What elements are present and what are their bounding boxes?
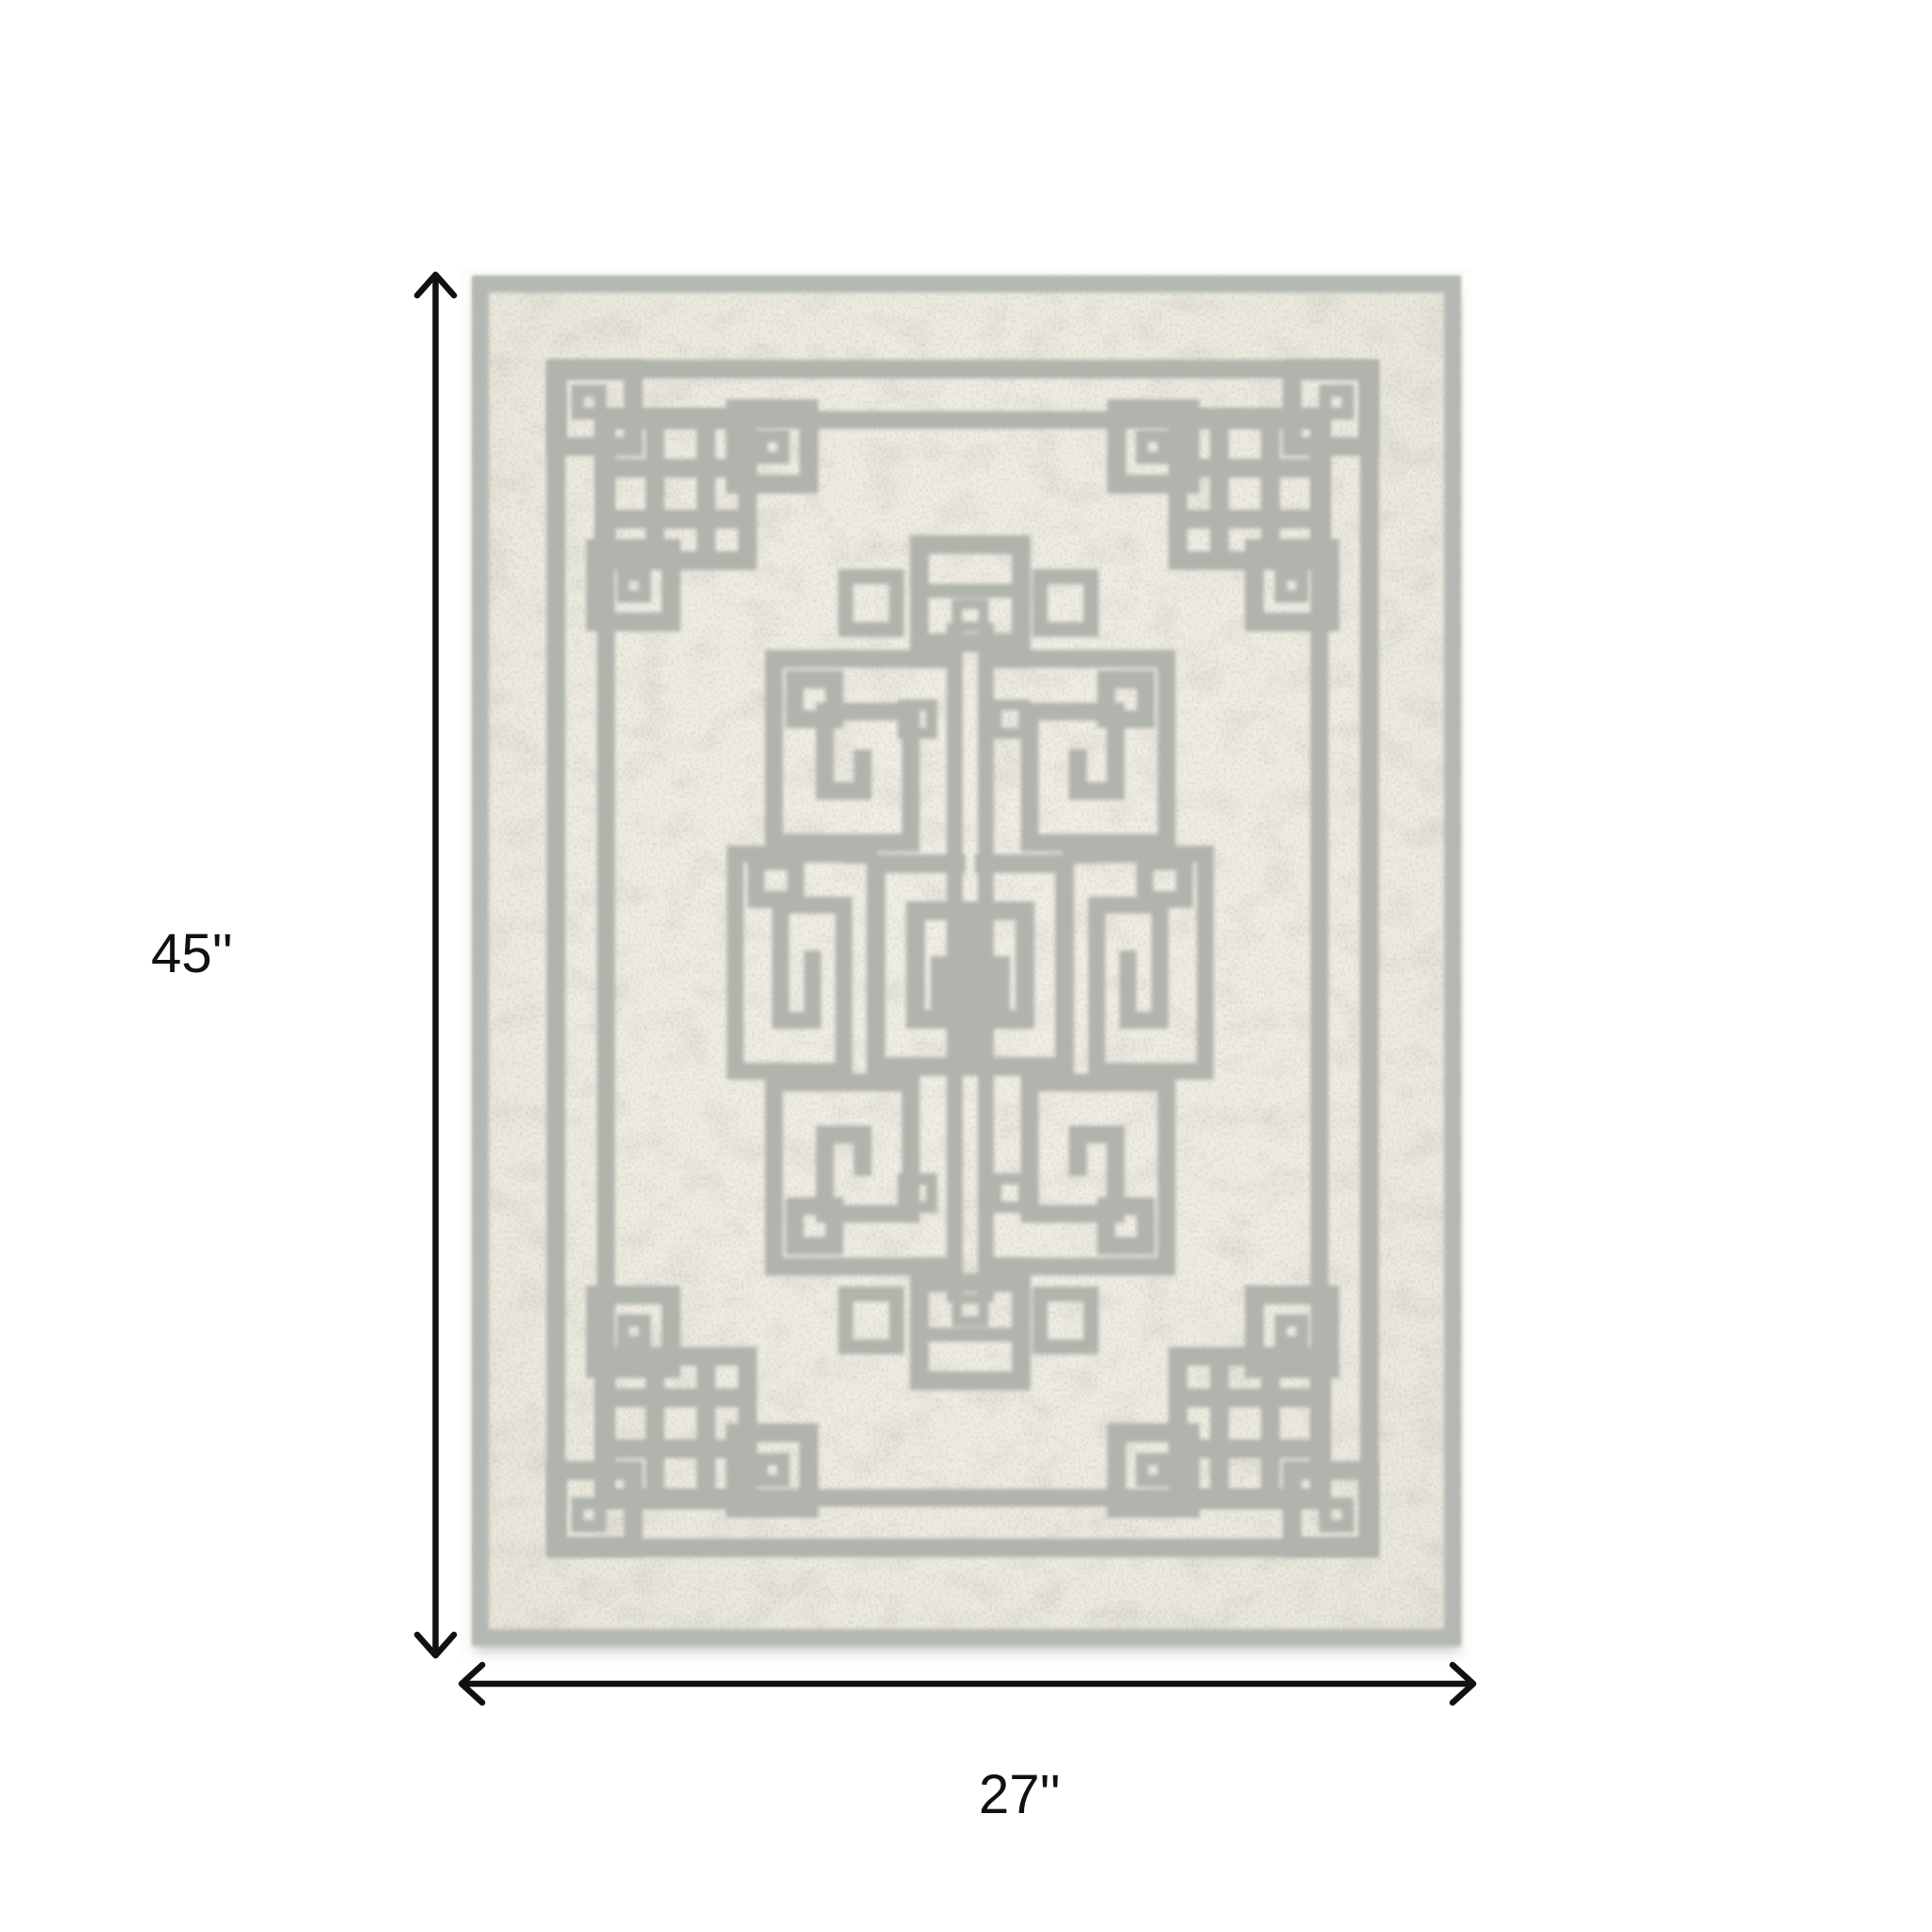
svg-text:27'': 27'' <box>979 1764 1061 1825</box>
svg-text:45'': 45'' <box>151 923 233 984</box>
